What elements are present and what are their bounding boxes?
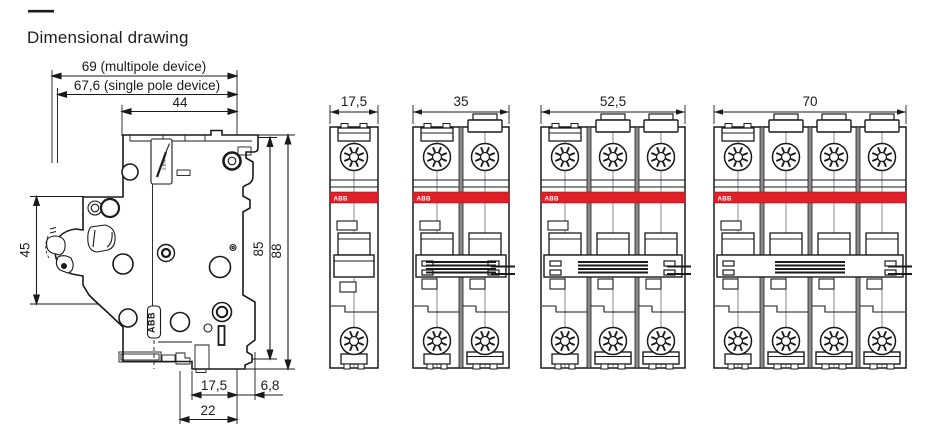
drawing-svg: 69 (multipole device) 67,6 (single pole … (0, 0, 938, 445)
dim-label-front-4: 70 (802, 94, 817, 109)
dim-45: 45 (18, 197, 40, 305)
abb-band-label-2: ABB (417, 196, 432, 203)
dim-label-17-5: 17,5 (201, 378, 227, 393)
abb-band-label-4: ABB (718, 196, 733, 203)
abb-side-label: ABB (147, 312, 157, 333)
dim-44: 44 (122, 95, 237, 114)
abb-band-label-1: ABB (334, 196, 349, 203)
screwdriver-symbol: 2.8Nm (151, 139, 172, 184)
abb-side-marking: ABB (147, 306, 161, 338)
dim-label-67: 67,6 (single pole device) (74, 78, 220, 93)
dim-label-22: 22 (200, 403, 215, 418)
front-view-3-pole: 52,5ABB (541, 94, 691, 369)
dim-label-front-1: 17,5 (341, 94, 367, 109)
front-view-4-pole: 70ABB (714, 94, 912, 369)
dim-label-front-3: 52,5 (600, 94, 626, 109)
front-view-1-pole: 17,5ABB (330, 94, 378, 369)
dim-17-5-bottom: 17,5 (192, 378, 237, 398)
dim-88: 88 (269, 135, 291, 369)
dim-label-front-2: 35 (453, 94, 468, 109)
abb-band-label-3: ABB (545, 196, 560, 203)
dim-label-45: 45 (18, 242, 33, 257)
dim-label-85: 85 (251, 241, 266, 256)
dim-label-69: 69 (multipole device) (82, 59, 207, 74)
dim-22: 22 (180, 403, 237, 422)
front-view-2-pole: 35ABB (413, 94, 515, 369)
dim-6-8: 6,8 (237, 378, 283, 398)
dim-67-single-pole: 67,6 (single pole device) (58, 78, 238, 97)
dim-label-6-8: 6,8 (261, 378, 280, 393)
dim-69-multipole: 69 (multipole device) (52, 59, 237, 79)
torque-label: 2.8Nm (162, 156, 168, 170)
dimensional-drawing-page: — Dimensional drawing (0, 0, 938, 445)
side-view: 69 (multipole device) 67,6 (single pole … (18, 59, 296, 424)
handle-knob (88, 225, 115, 252)
dim-label-44: 44 (172, 95, 188, 110)
dim-label-88: 88 (269, 243, 284, 258)
